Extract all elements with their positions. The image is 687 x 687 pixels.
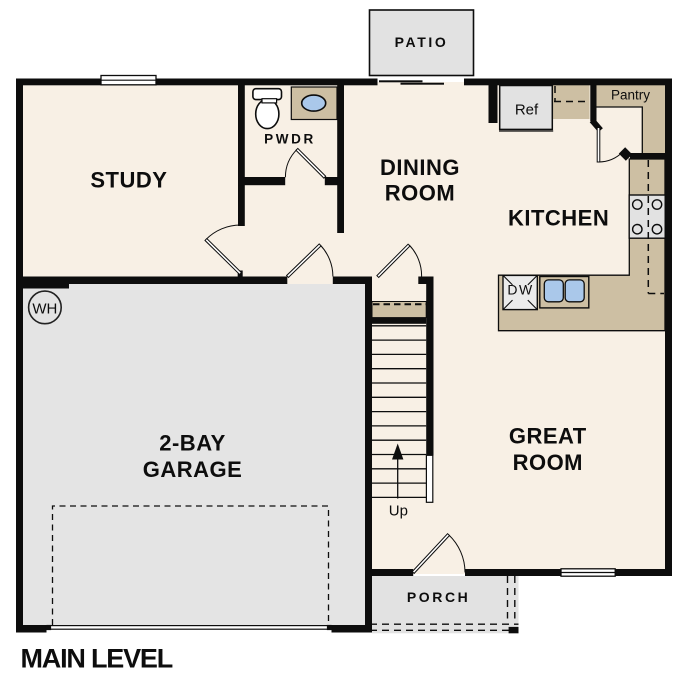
svg-text:PWDR: PWDR — [264, 131, 316, 146]
svg-text:GREAT: GREAT — [509, 424, 587, 449]
svg-text:KITCHEN: KITCHEN — [508, 206, 609, 231]
svg-text:Ref: Ref — [515, 102, 539, 119]
svg-text:PATIO: PATIO — [395, 34, 449, 50]
svg-text:WH: WH — [32, 301, 57, 318]
svg-text:2-BAY: 2-BAY — [159, 431, 226, 456]
svg-text:Up: Up — [389, 503, 408, 520]
svg-text:MAIN LEVEL: MAIN LEVEL — [21, 644, 173, 674]
svg-text:DW: DW — [507, 282, 533, 298]
svg-text:STUDY: STUDY — [90, 168, 167, 193]
svg-text:ROOM: ROOM — [385, 181, 455, 206]
svg-text:PORCH: PORCH — [407, 589, 471, 605]
svg-text:Pantry: Pantry — [611, 88, 650, 103]
svg-text:GARAGE: GARAGE — [143, 457, 243, 482]
svg-text:DINING: DINING — [380, 155, 460, 180]
svg-text:ROOM: ROOM — [513, 450, 583, 475]
